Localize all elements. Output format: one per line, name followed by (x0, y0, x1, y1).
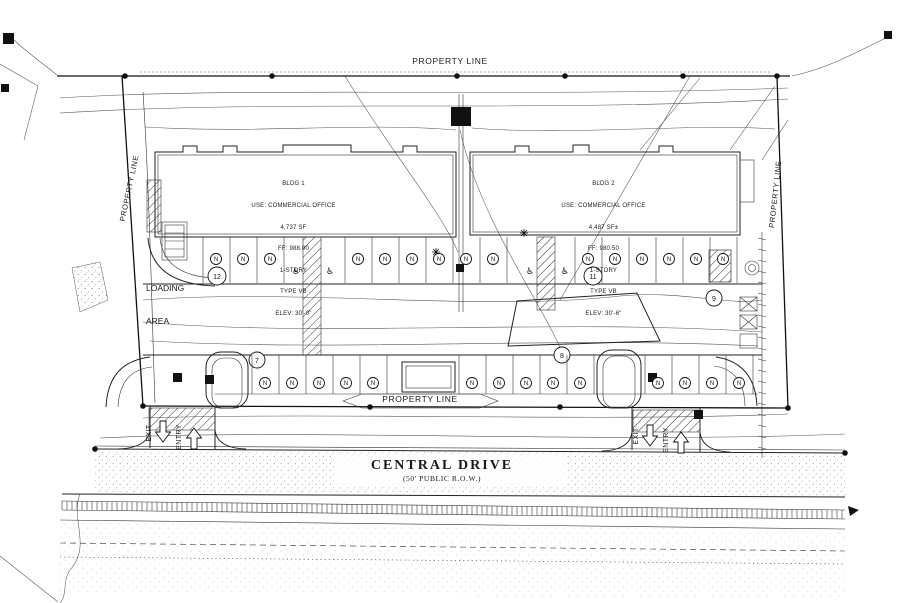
building-1-type: TYPE VB (216, 289, 371, 296)
parking-stall-marker: N (734, 378, 745, 389)
svg-text:N: N (437, 257, 441, 263)
railroad-strip (62, 501, 845, 519)
svg-text:N: N (497, 381, 501, 387)
parking-stall-marker: N (707, 378, 718, 389)
svg-text:N: N (317, 381, 321, 387)
svg-text:N: N (470, 381, 474, 387)
building-2-stories: 1-STORY (526, 268, 681, 275)
building-2-type: TYPE VB (526, 289, 681, 296)
loading-area-label-line2: AREA (146, 316, 184, 327)
svg-text:N: N (551, 381, 555, 387)
parking-stall-marker: N (680, 378, 691, 389)
manhole-symbol (745, 261, 759, 275)
svg-text:9: 9 (712, 296, 716, 303)
svg-text:N: N (694, 257, 698, 263)
svg-text:N: N (410, 257, 414, 263)
entry-label-right: ENTRY (663, 420, 671, 460)
parking-stall-marker: N (407, 254, 418, 265)
parking-stall-marker: N (488, 254, 499, 265)
svg-text:N: N (290, 381, 294, 387)
entry-arrow-right (674, 432, 689, 453)
keynote-8: 8 (554, 347, 570, 363)
property-line-label-top: PROPERTY LINE (390, 57, 510, 67)
landscape-patch (72, 262, 108, 312)
site-plan: 12 11 9 7 8 ♿ ♿ ♿ ♿ NNNNNNNNNNNNNNNNNNNN… (0, 0, 912, 603)
parking-stall-marker: N (467, 378, 478, 389)
parking-stall-marker: N (434, 254, 445, 265)
building-1-use: USE: COMMERCIAL OFFICE (216, 203, 371, 210)
parking-stall-marker: N (521, 378, 532, 389)
entry-label-left: ENTRY (176, 417, 184, 457)
exit-label-left: EXIT (146, 413, 154, 453)
parking-stall-marker: N (314, 378, 325, 389)
street-row-label: (50' PUBLIC R.O.W.) (342, 475, 542, 484)
parking-stall-marker: N (575, 378, 586, 389)
svg-text:8: 8 (560, 353, 564, 360)
parking-stall-marker: N (368, 378, 379, 389)
loading-area-label-line1: LOADING (146, 283, 184, 294)
building-1-ff: FF: 988.00 (216, 246, 371, 253)
parking-stall-marker: N (718, 254, 729, 265)
building-2-ff: FF: 980.50 (526, 246, 681, 253)
building-1-label: BLDG 1 USE: COMMERCIAL OFFICE 4,737 SF F… (216, 167, 371, 325)
street-name-label: CENTRAL DRIVE (342, 458, 542, 474)
svg-text:N: N (710, 381, 714, 387)
parking-stall-marker: N (260, 378, 271, 389)
building-1-name: BLDG 1 (216, 181, 371, 188)
svg-text:N: N (737, 381, 741, 387)
parking-stall-marker: N (653, 378, 664, 389)
keynote-9: 9 (706, 290, 722, 306)
loading-area-label: LOADING AREA (146, 261, 184, 338)
parking-stall-marker: N (461, 254, 472, 265)
building-1-area: 4,737 SF (216, 225, 371, 232)
parking-stall-marker: N (287, 378, 298, 389)
keynote-7: 7 (249, 352, 265, 368)
parking-stall-marker: N (494, 378, 505, 389)
building-2-elev: ELEV: 30'-6" (526, 311, 681, 318)
building-2-label: BLDG 2 USE: COMMERCIAL OFFICE 4,487 SF± … (526, 167, 681, 325)
svg-text:N: N (524, 381, 528, 387)
svg-text:N: N (263, 381, 267, 387)
svg-text:N: N (464, 257, 468, 263)
parking-stall-marker: N (548, 378, 559, 389)
building-2-area: 4,487 SF± (526, 225, 681, 232)
parking-stall-marker: N (380, 254, 391, 265)
svg-text:N: N (578, 381, 582, 387)
building-2-name: BLDG 2 (526, 181, 681, 188)
exit-label-right: EXIT (633, 416, 641, 456)
property-line-label-bottom: PROPERTY LINE (360, 395, 480, 405)
svg-text:N: N (683, 381, 687, 387)
entry-arrow-left (187, 428, 202, 449)
utility-vault-marker (451, 107, 471, 126)
contour-lines (0, 38, 886, 603)
site-plan-linework: 12 11 9 7 8 ♿ ♿ ♿ ♿ NNNNNNNNNNNNNNNNNNNN… (0, 0, 912, 603)
svg-text:N: N (383, 257, 387, 263)
svg-text:N: N (344, 381, 348, 387)
parking-stall-marker: N (341, 378, 352, 389)
building-1-elev: ELEV: 30'-0" (216, 311, 371, 318)
svg-text:N: N (371, 381, 375, 387)
svg-text:N: N (491, 257, 495, 263)
building-1-stories: 1-STORY (216, 268, 371, 275)
svg-text:N: N (656, 381, 660, 387)
svg-text:7: 7 (255, 358, 259, 365)
svg-text:N: N (721, 257, 725, 263)
building-2-use: USE: COMMERCIAL OFFICE (526, 203, 681, 210)
parking-stall-marker: N (691, 254, 702, 265)
